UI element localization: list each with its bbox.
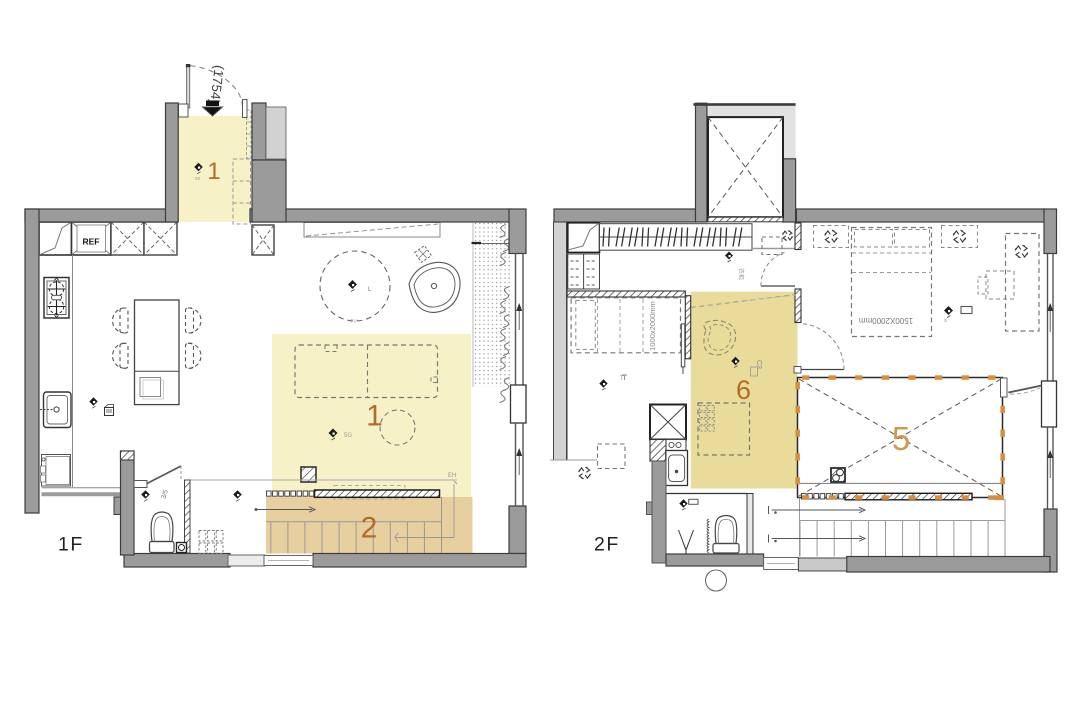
- svg-text:1500X2000mm: 1500X2000mm: [859, 316, 914, 325]
- svg-text:1: 1: [366, 400, 383, 433]
- svg-text:xx: xx: [195, 176, 201, 182]
- svg-text:C3: C3: [755, 360, 762, 369]
- svg-text:1000x2000mm: 1000x2000mm: [648, 301, 657, 351]
- svg-text:REF: REF: [83, 237, 100, 247]
- svg-text:2F: 2F: [594, 534, 620, 556]
- svg-text:衣柜: 衣柜: [737, 268, 745, 280]
- svg-text:x: x: [944, 318, 947, 324]
- svg-text:EH: EH: [448, 473, 456, 479]
- svg-text:5: 5: [892, 420, 910, 457]
- svg-text:1F: 1F: [58, 534, 84, 556]
- svg-text:T: T: [620, 376, 624, 382]
- svg-text:6: 6: [736, 375, 751, 405]
- svg-text:5G: 5G: [344, 433, 352, 439]
- svg-text:TV: TV: [350, 319, 357, 325]
- svg-text:2: 2: [361, 512, 378, 545]
- svg-text:1: 1: [207, 158, 220, 185]
